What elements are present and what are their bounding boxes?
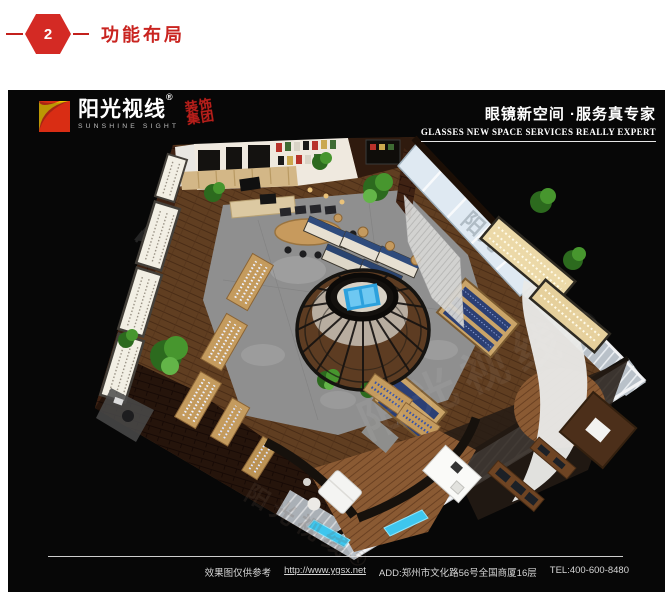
brand-logo-text: 阳光视线® SUNSHINE SIGHT [78, 99, 179, 130]
page-title: 功能布局 [101, 21, 185, 47]
header-line-left [6, 33, 23, 35]
brand-logo: 阳光视线® SUNSHINE SIGHT 装饰 集团 [38, 99, 214, 139]
header-line-right [73, 33, 89, 35]
footer-address: ADD:郑州市文化路56号全国商厦16层 [379, 565, 537, 579]
slide-page: 2 功能布局 阳光视线® SUNSHINE SIGHT 装饰 集团 [0, 0, 672, 596]
footer-tel: TEL:400-600-8480 [550, 565, 629, 579]
footer-info: 效果图仅供参考 http://www.ygsx.net ADD:郑州市文化路56… [8, 565, 629, 579]
footer-disclaimer: 效果图仅供参考 [205, 565, 272, 579]
tagline-cn: 眼镜新空间 ·服务真专家 [421, 103, 656, 124]
sunshine-logo-mark-icon [38, 99, 71, 139]
brand-badge: 装饰 集团 [184, 98, 216, 127]
slide-header: 2 功能布局 [6, 12, 185, 56]
registered-mark: ® [166, 92, 174, 102]
render-panel: 阳光视线® SUNSHINE SIGHT 装饰 集团 眼镜新空间 ·服务真专家 … [8, 90, 665, 592]
brand-name-en: SUNSHINE SIGHT [78, 123, 179, 130]
brand-name-cn: 阳光视线® [78, 99, 179, 120]
tagline-en: GLASSES NEW SPACE SERVICES REALLY EXPERT [421, 127, 656, 142]
footer-url: http://www.ygsx.net [284, 565, 366, 579]
brand-badge-line2: 集团 [186, 110, 216, 127]
step-badge: 2 [25, 14, 71, 54]
footer-divider [48, 556, 623, 557]
floorplan-rendering: 阳光 [8, 90, 665, 592]
step-number: 2 [44, 26, 52, 43]
brand-tagline: 眼镜新空间 ·服务真专家 GLASSES NEW SPACE SERVICES … [421, 103, 656, 142]
